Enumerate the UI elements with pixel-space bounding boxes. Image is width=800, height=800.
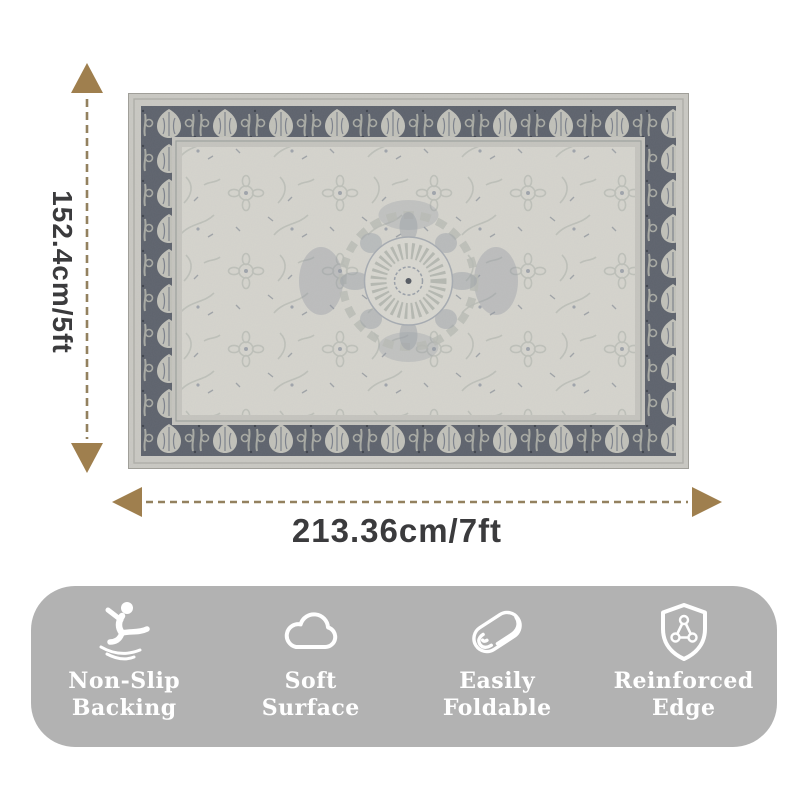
feature-label: Non-Slip Backing bbox=[68, 668, 180, 722]
feature-easily-foldable: Easily Foldable bbox=[404, 586, 591, 747]
arrow-left-icon bbox=[112, 487, 142, 517]
product-infographic: 152.4cm/5ft 213.36cm/7ft Non-Slip bbox=[0, 0, 800, 800]
arrow-right-icon bbox=[692, 487, 722, 517]
feature-soft-surface: Soft Surface bbox=[218, 586, 405, 747]
feature-bar: Non-Slip Backing Soft Surface bbox=[31, 586, 777, 747]
soft-surface-icon bbox=[278, 600, 344, 664]
rug-image bbox=[128, 93, 689, 469]
non-slip-backing-icon bbox=[91, 600, 157, 664]
feature-non-slip-backing: Non-Slip Backing bbox=[31, 586, 218, 747]
reinforced-edge-icon bbox=[651, 600, 717, 664]
feature-label: Reinforced Edge bbox=[614, 668, 754, 722]
arrow-up-icon bbox=[71, 63, 103, 93]
feature-label: Easily Foldable bbox=[443, 668, 552, 722]
width-dimension-label: 213.36cm/7ft bbox=[247, 511, 547, 551]
easily-foldable-icon bbox=[464, 600, 530, 664]
arrow-down-icon bbox=[71, 443, 103, 473]
height-dimension-label: 152.4cm/5ft bbox=[42, 173, 82, 371]
feature-reinforced-edge: Reinforced Edge bbox=[591, 586, 778, 747]
feature-label: Soft Surface bbox=[262, 668, 360, 722]
